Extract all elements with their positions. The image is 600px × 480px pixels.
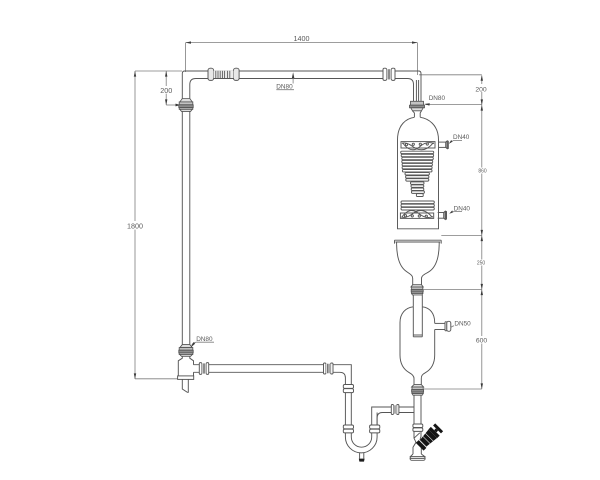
svg-text:DN80: DN80 <box>196 336 213 343</box>
svg-text:1800: 1800 <box>127 221 143 230</box>
svg-text:1400: 1400 <box>294 34 310 43</box>
svg-text:860: 860 <box>478 169 487 175</box>
svg-text:200: 200 <box>160 86 172 95</box>
svg-text:DN50: DN50 <box>454 321 471 328</box>
svg-text:200: 200 <box>475 86 487 93</box>
svg-text:250: 250 <box>477 261 486 267</box>
svg-text:DN80: DN80 <box>429 95 446 102</box>
svg-text:600: 600 <box>476 338 488 345</box>
